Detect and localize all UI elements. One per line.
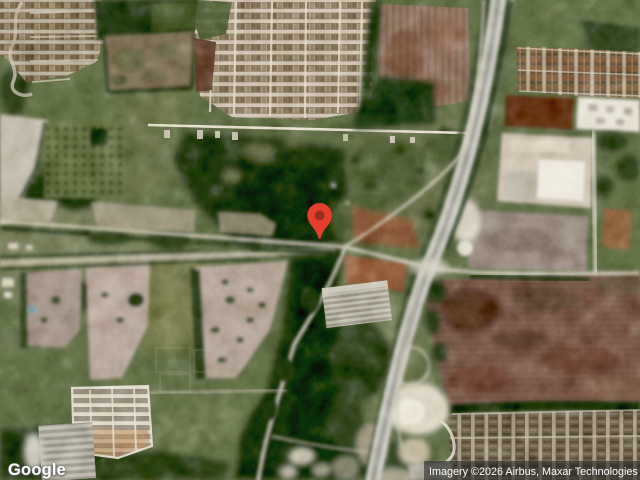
svg-text:Google: Google xyxy=(8,461,66,479)
svg-text:Imagery ©2026 Airbus, Maxar Te: Imagery ©2026 Airbus, Maxar Technologies xyxy=(429,466,638,478)
